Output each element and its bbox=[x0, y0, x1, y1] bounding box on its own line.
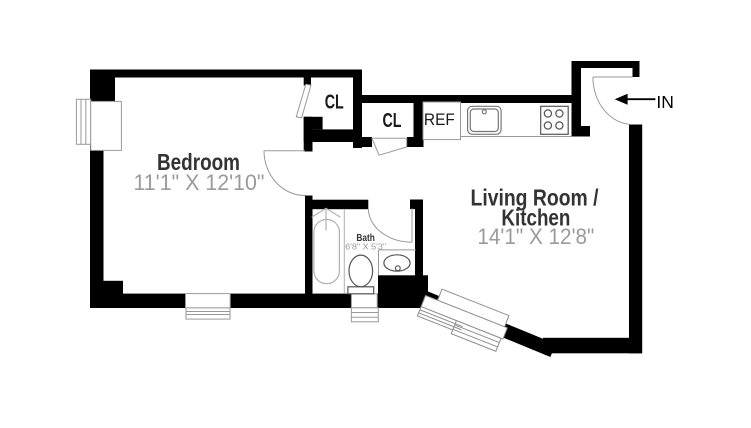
svg-text:11'1" X 12'10": 11'1" X 12'10" bbox=[134, 170, 265, 195]
svg-text:IN: IN bbox=[656, 92, 674, 112]
svg-text:CL: CL bbox=[383, 110, 402, 132]
svg-text:6'8" X 5'3": 6'8" X 5'3" bbox=[345, 241, 386, 251]
svg-text:REF: REF bbox=[424, 110, 455, 129]
svg-text:CL: CL bbox=[325, 91, 344, 113]
svg-text:14'1" X 12'8": 14'1" X 12'8" bbox=[477, 224, 594, 249]
